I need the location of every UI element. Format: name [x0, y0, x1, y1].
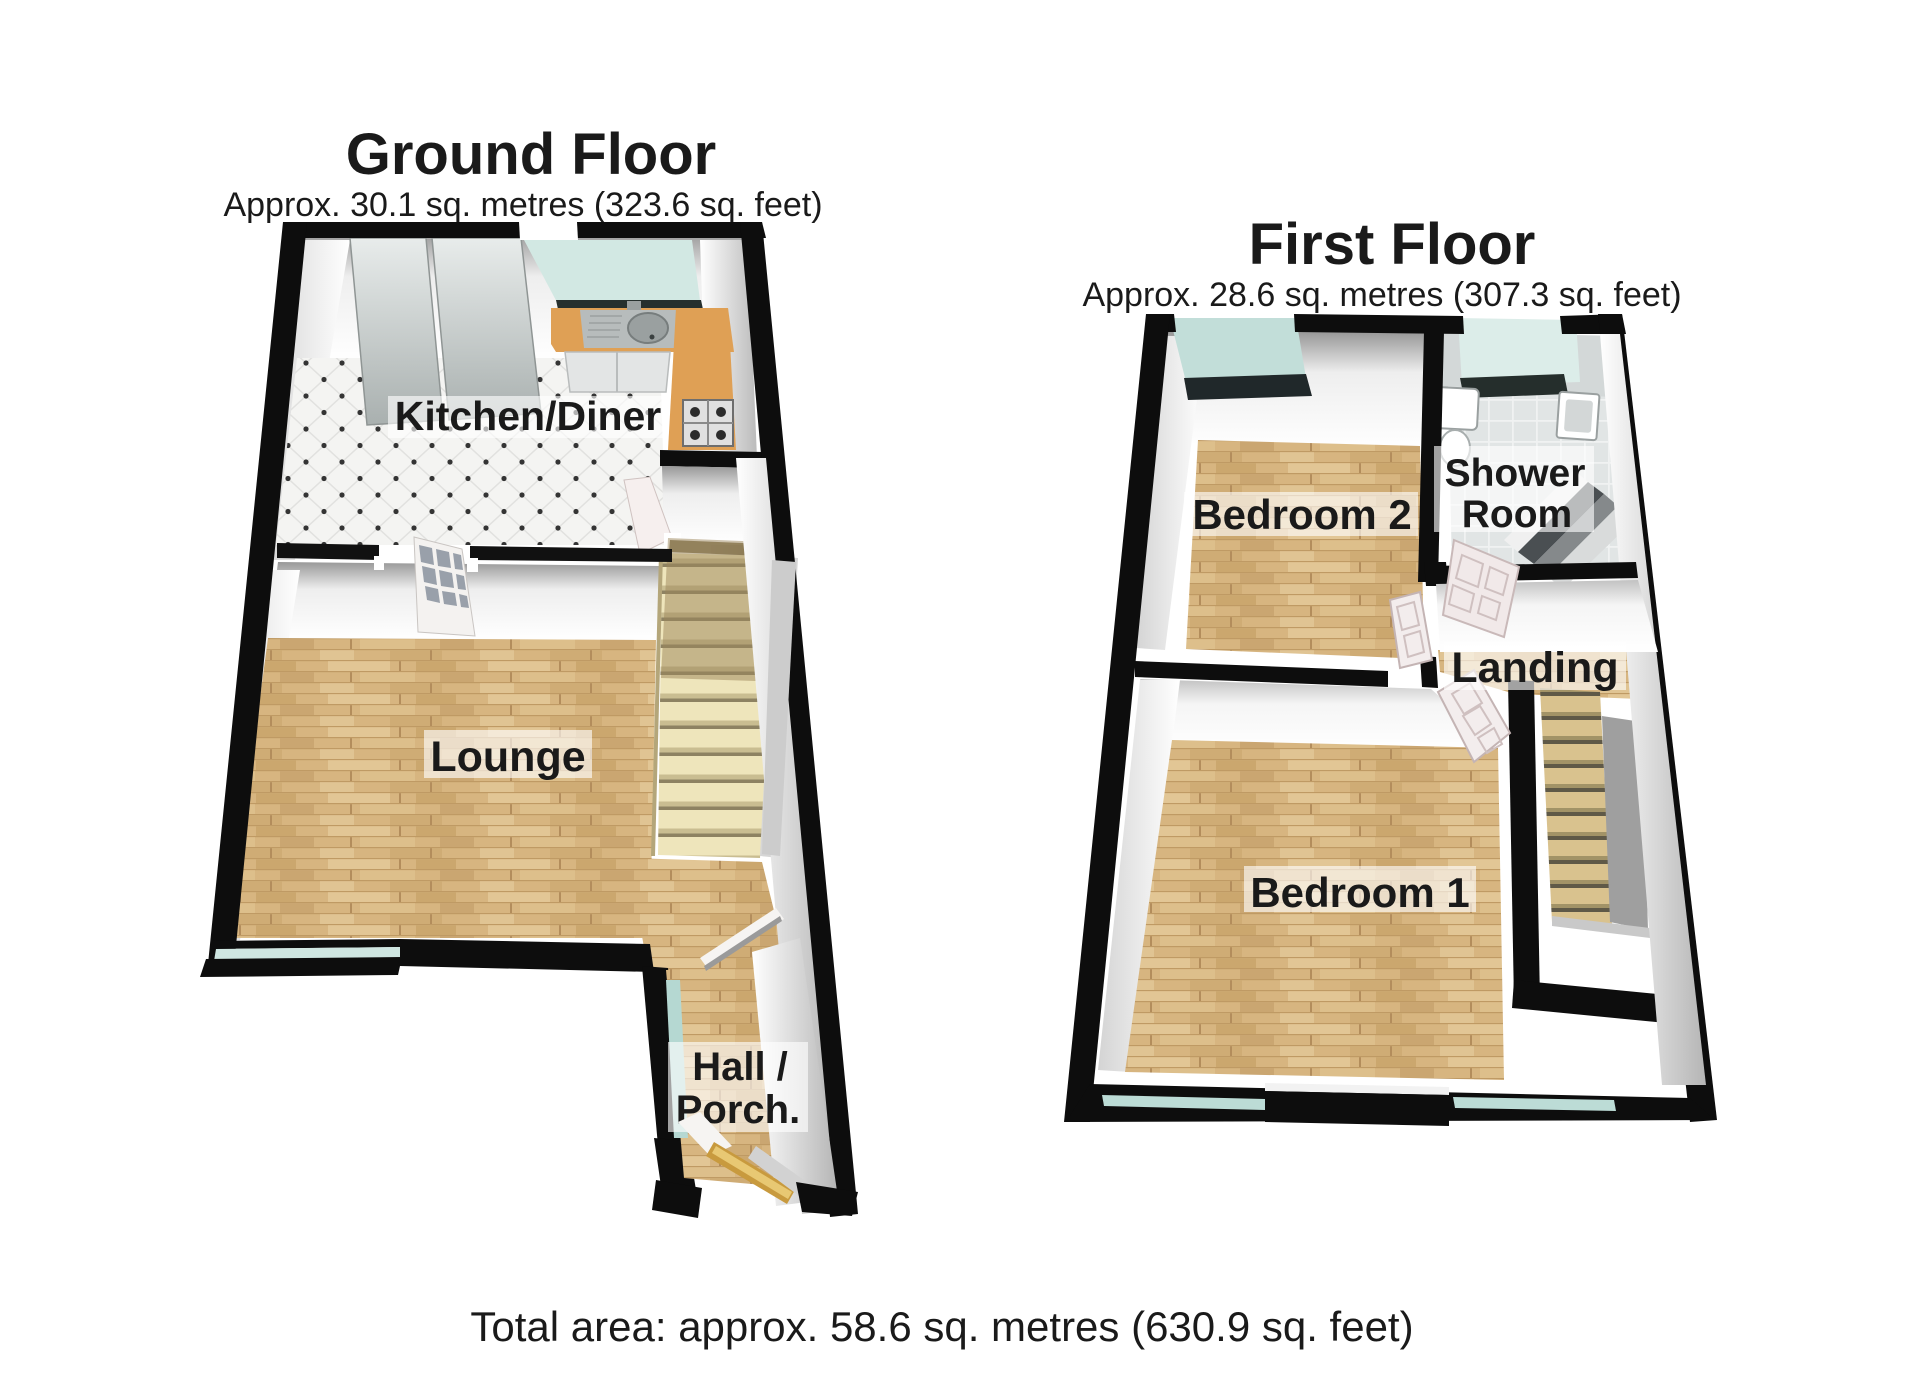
svg-text:Bedroom 1: Bedroom 1 — [1250, 869, 1469, 916]
svg-text:Approx. 30.1 sq. metres (323.6: Approx. 30.1 sq. metres (323.6 sq. feet) — [223, 186, 822, 224]
svg-text:Landing: Landing — [1451, 644, 1618, 692]
svg-text:Hall /: Hall / — [692, 1045, 788, 1089]
svg-text:Shower: Shower — [1445, 452, 1586, 495]
svg-text:Lounge: Lounge — [430, 733, 585, 781]
svg-text:Bedroom 2: Bedroom 2 — [1192, 491, 1411, 538]
svg-text:Kitchen/Diner: Kitchen/Diner — [395, 393, 662, 439]
svg-text:Ground Floor: Ground Floor — [346, 122, 717, 187]
svg-text:First Floor: First Floor — [1249, 212, 1536, 277]
svg-text:Room: Room — [1462, 493, 1573, 536]
svg-text:Total area: approx. 58.6 sq. m: Total area: approx. 58.6 sq. metres (630… — [470, 1303, 1413, 1350]
svg-text:Approx. 28.6 sq. metres (307.3: Approx. 28.6 sq. metres (307.3 sq. feet) — [1082, 276, 1681, 314]
